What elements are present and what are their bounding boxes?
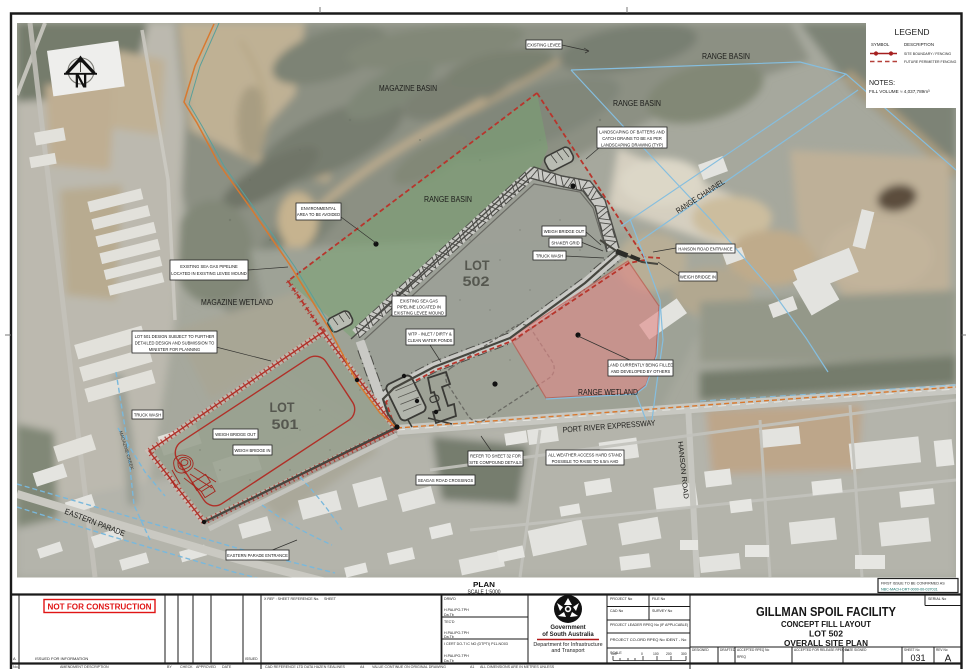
svg-text:DATE: DATE bbox=[222, 665, 232, 669]
svg-text:OVERALL SITE PLAN: OVERALL SITE PLAN bbox=[784, 639, 868, 648]
svg-text:CAD No: CAD No bbox=[610, 609, 623, 613]
svg-text:CLEAN WATER PONDS: CLEAN WATER PONDS bbox=[408, 338, 453, 343]
svg-text:LANDSCAPING DRAWING (TYP): LANDSCAPING DRAWING (TYP) bbox=[601, 143, 664, 148]
svg-text:ALL DIMENSIONS ARE IN METRES U: ALL DIMENSIONS ARE IN METRES UNLESS bbox=[480, 665, 555, 669]
svg-text:PROJECT CO-ORD RPEQ No IDENT -: PROJECT CO-ORD RPEQ No IDENT - No bbox=[610, 637, 687, 642]
svg-text:I CERT DO-T IC NO (DTPTI) P11-: I CERT DO-T IC NO (DTPTI) P11-NO03 bbox=[444, 642, 508, 646]
svg-text:CATCH DRAINS TO BE AS PER: CATCH DRAINS TO BE AS PER bbox=[602, 136, 662, 141]
svg-text:EXISTING LEVEE MOUND: EXISTING LEVEE MOUND bbox=[394, 311, 444, 316]
svg-text:SHAKER GRID: SHAKER GRID bbox=[551, 241, 579, 246]
svg-text:X REF : SHEET REFERENCE No.: X REF : SHEET REFERENCE No. bbox=[264, 597, 319, 601]
svg-text:TRUCK WASH: TRUCK WASH bbox=[134, 413, 161, 418]
svg-text:EXISTING SEA GAS PIPELINE: EXISTING SEA GAS PIPELINE bbox=[180, 264, 238, 269]
svg-text:EXISTING LEVEE: EXISTING LEVEE bbox=[527, 43, 561, 48]
svg-text:100: 100 bbox=[611, 652, 617, 656]
svg-text:A1: A1 bbox=[470, 665, 474, 669]
svg-text:AND DEVELOPED BY OTHERS: AND DEVELOPED BY OTHERS bbox=[611, 369, 671, 374]
svg-text:NBC-MACH-DRT-0000-00-037031: NBC-MACH-DRT-0000-00-037031 bbox=[881, 588, 938, 592]
svg-text:FIRST ISSUE TO BE CONFIRMED AS: FIRST ISSUE TO BE CONFIRMED AS bbox=[881, 582, 945, 586]
svg-text:100: 100 bbox=[653, 652, 659, 656]
svg-text:Government: Government bbox=[550, 625, 585, 631]
svg-text:EXISTING SEA GAS: EXISTING SEA GAS bbox=[400, 299, 438, 304]
svg-text:0: 0 bbox=[641, 652, 643, 656]
svg-text:DRW'D: DRW'D bbox=[444, 597, 456, 601]
svg-text:ENVIRONMENTAL: ENVIRONMENTAL bbox=[301, 206, 337, 211]
svg-text:AMENDMENT DESCRIPTION: AMENDMENT DESCRIPTION bbox=[60, 665, 109, 669]
svg-text:300: 300 bbox=[681, 652, 687, 656]
svg-text:LOT 502: LOT 502 bbox=[809, 630, 844, 639]
svg-text:PLAN: PLAN bbox=[473, 582, 495, 589]
svg-text:LAND CURRENTLY BEING FILLED: LAND CURRENTLY BEING FILLED bbox=[608, 363, 674, 368]
svg-text:H.PALIPO-TPH: H.PALIPO-TPH bbox=[444, 654, 469, 658]
svg-text:SYMBOL: SYMBOL bbox=[871, 42, 890, 47]
svg-text:A: A bbox=[945, 654, 952, 665]
svg-text:GILLMAN SPOIL FACILITY: GILLMAN SPOIL FACILITY bbox=[756, 604, 896, 619]
svg-text:DESIGNED: DESIGNED bbox=[692, 648, 709, 652]
svg-text:A4: A4 bbox=[360, 665, 364, 669]
svg-text:FUTURE PERIMETER FENCING: FUTURE PERIMETER FENCING bbox=[904, 60, 957, 64]
svg-text:MAGAZINE WETLAND: MAGAZINE WETLAND bbox=[201, 298, 273, 307]
svg-text:SHEET: SHEET bbox=[324, 597, 337, 601]
svg-text:ISSUED: ISSUED bbox=[245, 657, 258, 661]
svg-text:CHECK: CHECK bbox=[180, 665, 193, 669]
svg-text:REV No: REV No bbox=[936, 648, 948, 652]
svg-text:DATE SIGNED: DATE SIGNED bbox=[845, 648, 867, 652]
svg-text:ACCEPTED FOR RELEASE RPEQ No: ACCEPTED FOR RELEASE RPEQ No bbox=[794, 648, 850, 652]
svg-text:TRUCK WASH: TRUCK WASH bbox=[536, 254, 563, 259]
svg-text:DESCRIPTION: DESCRIPTION bbox=[904, 42, 934, 47]
svg-text:LOT 501 DESIGN SUBJECT TO FURT: LOT 501 DESIGN SUBJECT TO FURTHER bbox=[135, 334, 215, 339]
svg-text:PROJECT LEADER RPEQ No (IF APP: PROJECT LEADER RPEQ No (IF APPLICABLE) bbox=[610, 623, 688, 627]
svg-text:WEIGH BRIDGE IN: WEIGH BRIDGE IN bbox=[235, 448, 271, 453]
svg-text:VALUE CONTINUE ON ORIGINAL DRA: VALUE CONTINUE ON ORIGINAL DRAWING bbox=[372, 665, 446, 669]
svg-text:PROJECT No: PROJECT No bbox=[610, 597, 632, 601]
svg-text:FILL VOLUME ≈ 4,037,789m³: FILL VOLUME ≈ 4,037,789m³ bbox=[869, 89, 930, 94]
svg-text:HANSON ROAD ENTRANCE: HANSON ROAD ENTRANCE bbox=[678, 247, 732, 252]
svg-text:Da.Tb: Da.Tb bbox=[444, 659, 454, 663]
svg-text:SERIAL No: SERIAL No bbox=[928, 597, 946, 601]
svg-text:ISSUED FOR INFORMATION: ISSUED FOR INFORMATION bbox=[35, 656, 88, 661]
svg-text:CAD REFERENCE LTD DATA HAZEN S: CAD REFERENCE LTD DATA HAZEN SEALINES bbox=[265, 665, 345, 669]
svg-text:SURVEY No: SURVEY No bbox=[652, 609, 672, 613]
svg-text:RPEQ: RPEQ bbox=[737, 655, 747, 659]
svg-text:ALL WEATHER ACCESS HARD STAND: ALL WEATHER ACCESS HARD STAND bbox=[548, 453, 622, 458]
svg-text:NOTES:: NOTES: bbox=[869, 80, 895, 87]
svg-text:Da.Tb: Da.Tb bbox=[444, 635, 454, 639]
svg-text:AREA TO BE AVOIDED: AREA TO BE AVOIDED bbox=[297, 212, 340, 217]
svg-text:WEIGH BRIDGE OUT: WEIGH BRIDGE OUT bbox=[544, 229, 585, 234]
svg-text:MINISTER FOR PLANNING: MINISTER FOR PLANNING bbox=[149, 347, 200, 352]
svg-text:031: 031 bbox=[910, 653, 925, 663]
svg-text:APPROVED: APPROVED bbox=[196, 665, 216, 669]
svg-text:RANGE BASIN: RANGE BASIN bbox=[424, 195, 472, 204]
svg-text:RANGE BASIN: RANGE BASIN bbox=[613, 99, 661, 108]
svg-text:Da.Tb: Da.Tb bbox=[444, 613, 454, 617]
svg-text:PIPELINE LOCATED IN: PIPELINE LOCATED IN bbox=[397, 305, 441, 310]
svg-text:DRAFTED: DRAFTED bbox=[720, 648, 736, 652]
svg-text:LOT: LOT bbox=[270, 399, 295, 415]
svg-text:LEGEND: LEGEND bbox=[895, 27, 930, 37]
svg-text:RANGE WETLAND: RANGE WETLAND bbox=[578, 388, 638, 397]
svg-text:of South Australia: of South Australia bbox=[542, 632, 594, 638]
svg-text:N: N bbox=[75, 72, 88, 92]
svg-text:LOCATED IN EXISTING LEVEE MOUN: LOCATED IN EXISTING LEVEE MOUND bbox=[171, 271, 246, 276]
svg-text:EASTERN PARADE ENTRANCE: EASTERN PARADE ENTRANCE bbox=[227, 553, 288, 558]
svg-text:WEIGH BRIDGE IN: WEIGH BRIDGE IN bbox=[680, 275, 716, 280]
svg-text:DETAILED DESIGN AND SUBMISSION: DETAILED DESIGN AND SUBMISSION TO bbox=[135, 341, 215, 346]
svg-text:TEC'D: TEC'D bbox=[444, 620, 455, 624]
svg-text:200: 200 bbox=[666, 652, 672, 656]
svg-text:WEIGH BRIDGE OUT: WEIGH BRIDGE OUT bbox=[215, 432, 256, 437]
svg-text:RANGE BASIN: RANGE BASIN bbox=[702, 52, 750, 61]
svg-text:MAGAZINE BASIN: MAGAZINE BASIN bbox=[379, 84, 437, 93]
svg-text:BY: BY bbox=[167, 665, 172, 669]
svg-text:No.: No. bbox=[13, 665, 19, 669]
svg-text:WTP - INLET / DIRTY &: WTP - INLET / DIRTY & bbox=[408, 332, 452, 337]
svg-text:ACCEPTED RPEQ No: ACCEPTED RPEQ No bbox=[737, 648, 769, 652]
svg-text:CONCEPT FILL LAYOUT: CONCEPT FILL LAYOUT bbox=[781, 620, 871, 629]
svg-text:REFER TO SHEET 32 FOR: REFER TO SHEET 32 FOR bbox=[470, 454, 521, 459]
svg-text:A: A bbox=[13, 656, 16, 661]
svg-text:LANDSCAPING OF BATTERS AND: LANDSCAPING OF BATTERS AND bbox=[599, 130, 664, 135]
svg-text:and Transport: and Transport bbox=[551, 648, 585, 654]
svg-text:SITE BOUNDARY / FENCING: SITE BOUNDARY / FENCING bbox=[904, 52, 951, 56]
svg-text:H.PALIPO-TPH: H.PALIPO-TPH bbox=[444, 608, 469, 612]
svg-text:SEAGAS ROAD CROSSINGS: SEAGAS ROAD CROSSINGS bbox=[418, 478, 474, 483]
svg-text:LOT: LOT bbox=[465, 257, 490, 273]
svg-text:FILE No: FILE No bbox=[652, 597, 665, 601]
svg-text:POSSIBLE TO RAISE TO 6.5m AHD: POSSIBLE TO RAISE TO 6.5m AHD bbox=[552, 459, 619, 464]
svg-text:SHEET No: SHEET No bbox=[904, 648, 920, 652]
svg-text:NOT FOR CONSTRUCTION: NOT FOR CONSTRUCTION bbox=[48, 603, 152, 612]
svg-text:502: 502 bbox=[463, 273, 490, 289]
svg-text:501: 501 bbox=[272, 416, 299, 432]
svg-text:SITE COMPOUND DETAILS: SITE COMPOUND DETAILS bbox=[469, 460, 522, 465]
